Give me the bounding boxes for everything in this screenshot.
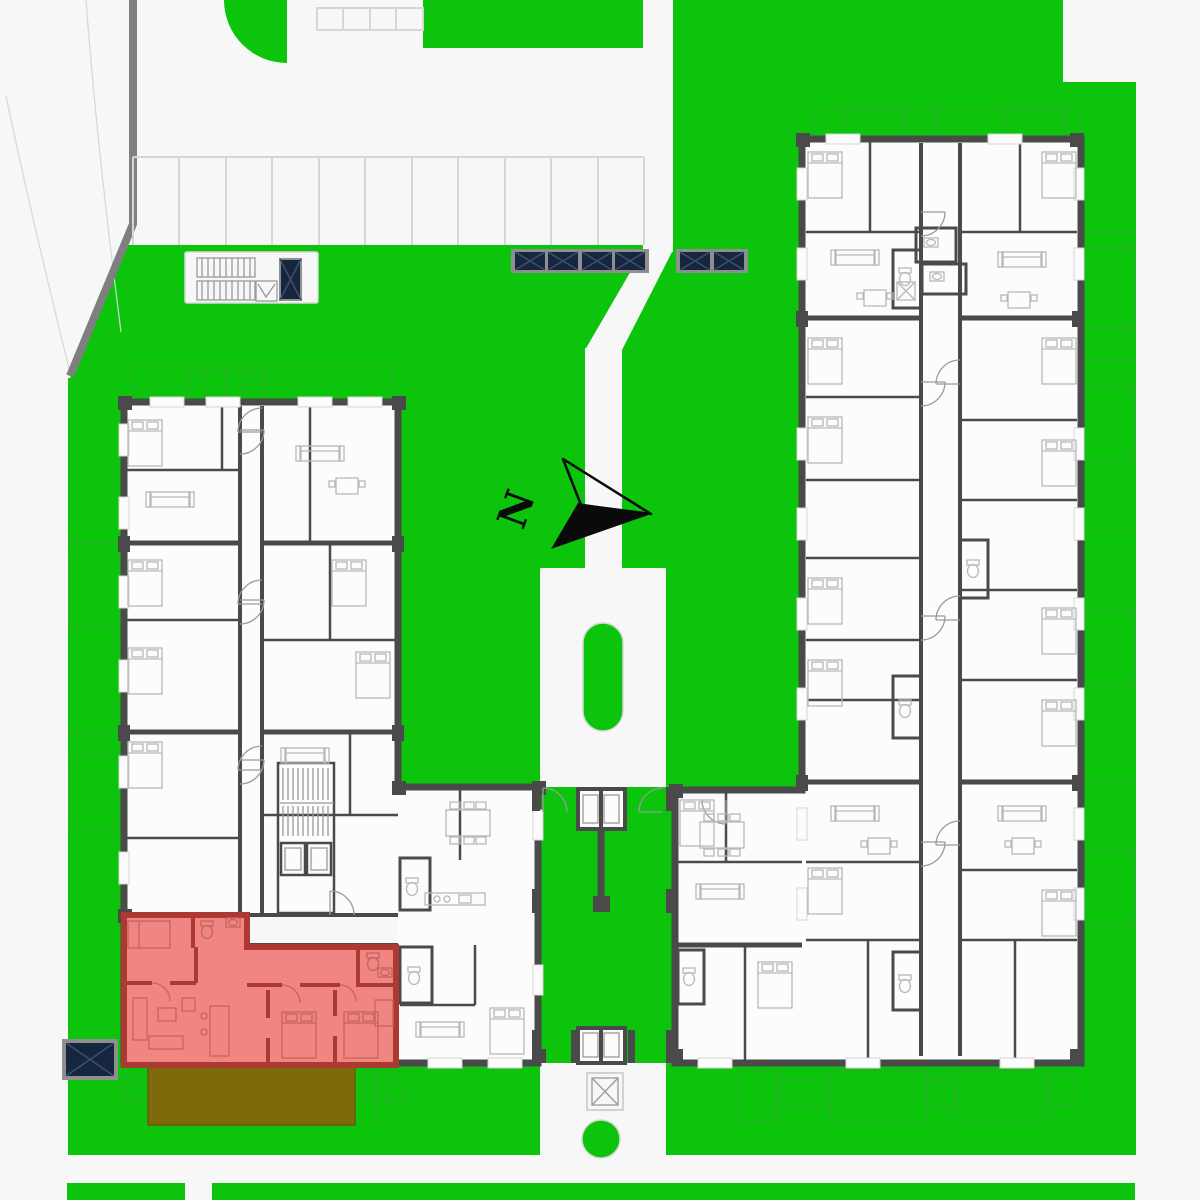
upper-parking-stalls [317,8,423,30]
lawn-strip-bottom-right [212,1183,1135,1200]
stairwell-panel [280,259,301,300]
pavement-top-right [1063,0,1200,82]
pavement-right-margin [1136,80,1200,1200]
site-plan-canvas: N [0,0,1200,1200]
highlighted-unit-terrace [148,1067,355,1125]
lawn-strip-top [423,0,645,48]
round-lawn-patch [582,1120,620,1158]
panel-strip-center [511,249,649,273]
skylight-marker [587,1073,623,1110]
panel-box-southwest [62,1039,118,1080]
lawn-strip-bottom-left [67,1183,185,1200]
panel-strip-right [676,249,748,273]
stairwell-box [185,252,318,303]
lawn-island-oval [583,623,623,731]
